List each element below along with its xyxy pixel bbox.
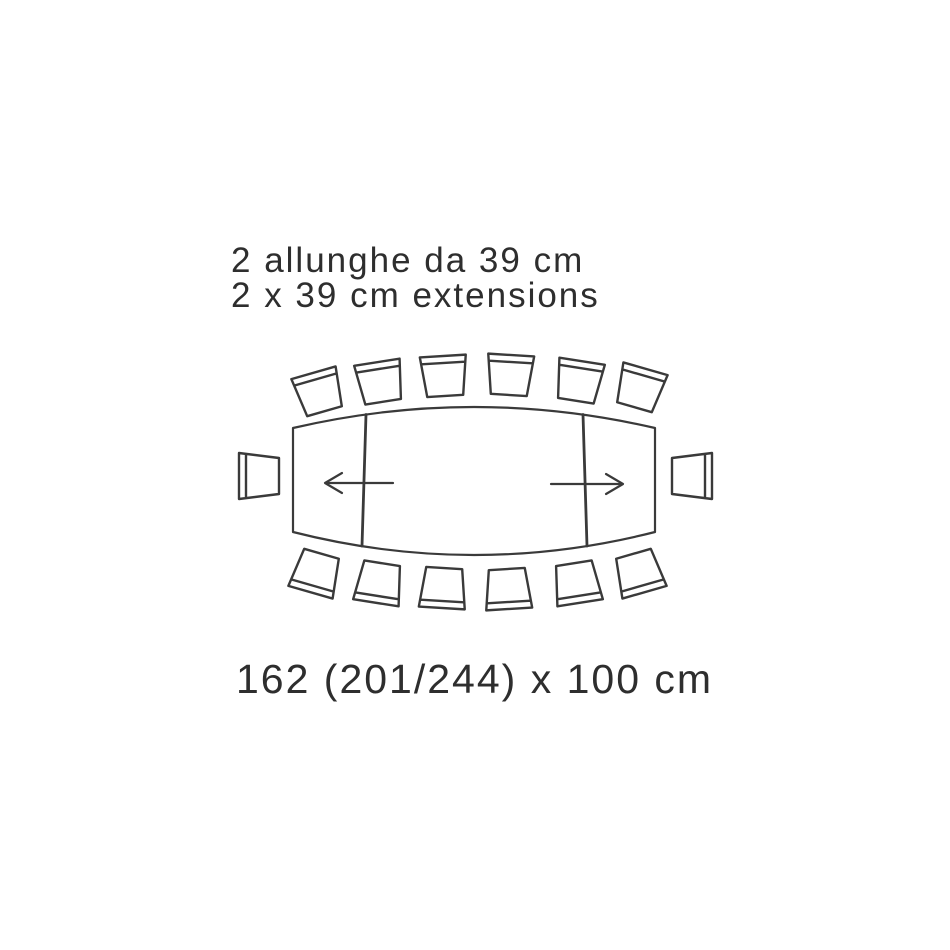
chairs-layer <box>239 354 712 611</box>
chair-bottom-4 <box>484 568 532 611</box>
table-diagram <box>0 0 950 950</box>
chair-bottom-1 <box>288 547 343 598</box>
chair-bottom-6 <box>611 547 666 598</box>
chair-top-2 <box>354 359 406 406</box>
table-outline <box>293 407 655 555</box>
extension-arrow-left-icon <box>325 473 393 493</box>
chair-top-5 <box>553 358 605 405</box>
extension-divider-left-line <box>362 415 366 547</box>
product-dimension-sheet: 2 allunghe da 39 cm 2 x 39 cm extensions… <box>0 0 950 950</box>
chair-bottom-2 <box>353 560 405 607</box>
chair-end-right <box>672 453 712 499</box>
dimension-label: 162 (201/244) x 100 cm <box>236 657 713 701</box>
chair-bottom-5 <box>551 560 603 607</box>
chair-top-6 <box>612 362 667 413</box>
extension-arrow-right-icon <box>551 474 623 494</box>
extension-divider-right-line <box>583 415 587 547</box>
chair-top-1 <box>291 366 346 417</box>
chair-top-3 <box>420 355 468 398</box>
chair-bottom-3 <box>419 567 467 610</box>
chair-end-left <box>239 453 279 499</box>
chair-top-4 <box>486 354 534 397</box>
